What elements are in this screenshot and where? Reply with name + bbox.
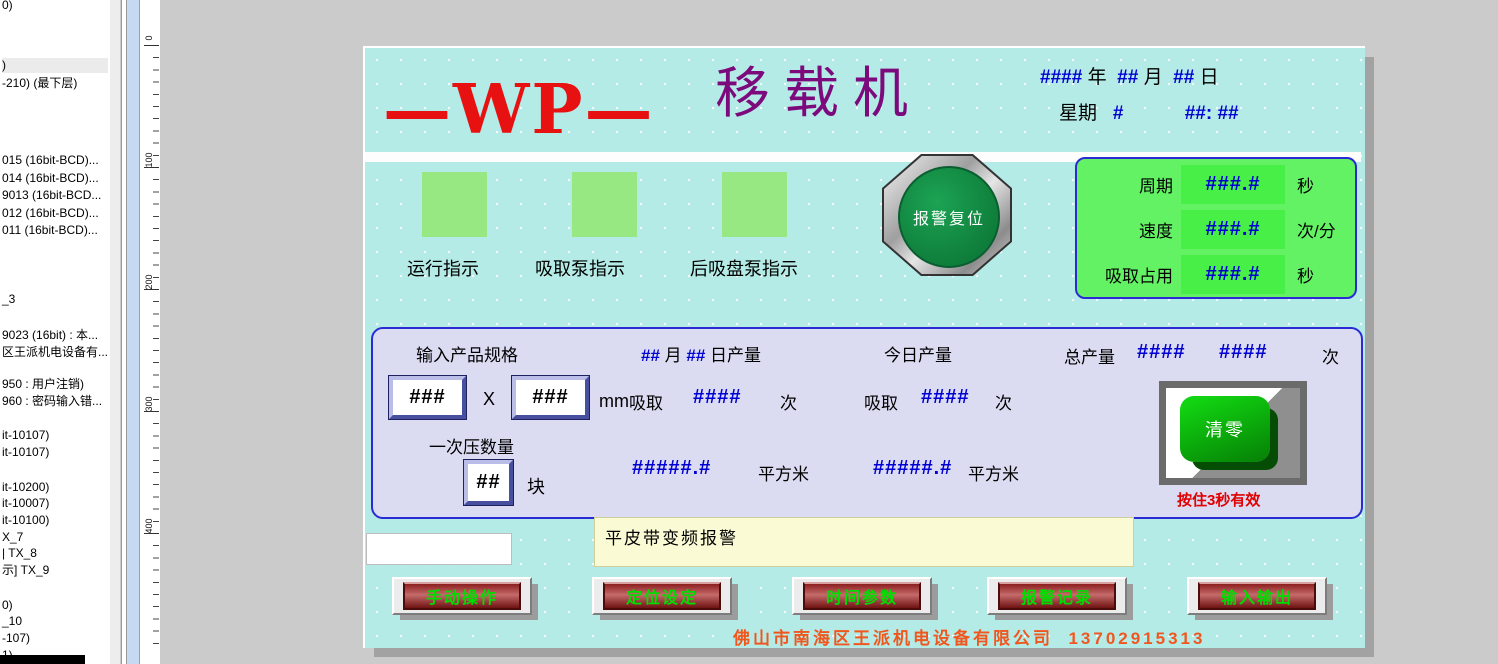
speed-unit: 次/分 [1297,217,1336,242]
list-item[interactable]: it-10107) [2,445,49,460]
cycle-value: ###.# [1181,165,1285,204]
list-item[interactable]: 9023 (16bit) : 本... [2,328,98,343]
month-label: 月 [1144,67,1163,88]
day-label: 日 [1200,67,1219,88]
list-item[interactable]: 011 (16bit-BCD)... [2,223,98,238]
list-item[interactable]: 014 (16bit-BCD)... [2,171,99,186]
company-phone: 13702915313 [1068,629,1205,648]
cycle-label: 周期 [1077,172,1173,197]
time-parameters-button[interactable]: 时间参数 [792,577,932,615]
press-count-input[interactable]: ## [464,460,513,505]
ruler-label: 400 [144,511,154,541]
page-title: 移载机 [715,48,922,128]
production-panel: 输入产品规格 ## 月 ## 日产量 今日产量 总产量 #### #### 次 … [371,327,1363,519]
stats-row: 周期 ###.# 秒 [1077,162,1355,207]
indicator-label: 后吸盘泵指示 [690,255,798,281]
suction-occupy-value: ###.# [1181,255,1285,294]
list-item[interactable]: 0) [2,598,13,613]
alarm-message-text: 平皮带变频报警 [605,524,738,549]
time-parameters-label: 时间参数 [803,582,921,610]
month-value: ## [1117,67,1138,88]
company-footer: 佛山市南海区王派机电设备有限公司 13702915313 [733,624,1205,649]
spec-height-input[interactable]: ### [512,376,589,419]
list-item[interactable]: 950 : 用户注销) [2,377,84,392]
indicator-label: 吸取泵指示 [535,255,625,281]
manual-operation-button[interactable]: 手动操作 [392,577,532,615]
date-display: #### 年 ## 月 ## 日 [1040,62,1219,89]
daily-suction-value: #### [693,386,742,409]
ruler-label: 200 [144,267,154,297]
total-output-value-low: #### [1219,341,1268,364]
input-output-label: 输入输出 [1198,582,1316,610]
company-name: 佛山市南海区王派机电设备有限公司 [733,629,1053,648]
total-output-unit: 次 [1322,343,1339,368]
suction-pump-indicator-light [572,172,637,237]
daily-area-value: #####.# [632,457,711,480]
spec-label: 输入产品规格 [416,341,518,366]
scroll-strip[interactable] [127,0,140,664]
alarm-record-label: 报警记录 [998,582,1116,610]
list-item[interactable]: 015 (16bit-BCD)... [2,153,99,168]
daily-suction-unit: 次 [780,389,797,414]
rear-suction-pump-indicator-light [722,172,787,237]
ruler-label: 100 [144,145,154,175]
stats-row: 吸取占用 ###.# 秒 [1077,252,1355,297]
daily-output-title: ## 月 ## 日产量 [641,341,761,366]
ruler-ticks [153,45,159,655]
position-setting-button[interactable]: 定位设定 [592,577,732,615]
today-area-value: #####.# [873,457,952,480]
week-label: 星期 [1059,103,1097,124]
list-item[interactable]: 012 (16bit-BCD)... [2,206,99,221]
list-item[interactable]: 9013 (16bit-BCD... [2,188,101,203]
manual-operation-label: 手动操作 [403,582,521,610]
clear-button-frame: 清零 [1159,381,1307,485]
stats-row: 速度 ###.# 次/分 [1077,207,1355,252]
today-suction-value: #### [921,386,970,409]
alarm-record-button[interactable]: 报警记录 [987,577,1127,615]
daily-month-value: ## [641,346,660,365]
total-output-label: 总产量 [1064,343,1115,368]
time-value: ##: ## [1185,103,1239,124]
position-setting-label: 定位设定 [603,582,721,610]
panel-splitter[interactable] [110,0,120,664]
alarm-reset-label: 报警复位 [898,166,1000,268]
hmi-screen: —WP— 移载机 #### 年 ## 月 ## 日 星期 # ##: ## 运行… [363,46,1365,648]
speed-label: 速度 [1077,217,1173,242]
spec-unit-label: mm [599,391,629,412]
suction-occupy-unit: 秒 [1297,262,1314,287]
ruler-label: 300 [144,389,154,419]
alarm-reset-button[interactable]: 报警复位 [882,154,1012,276]
list-item[interactable]: it-10107) [2,428,49,443]
list-item[interactable]: 0) [2,0,13,13]
daily-month-label: 月 [665,346,682,365]
list-item[interactable]: | TX_8 [2,546,37,561]
indicator-label: 运行指示 [407,255,479,281]
list-item[interactable]: -210) (最下层) [2,76,77,91]
list-item[interactable]: 区王派机电设备有... [2,345,108,360]
spec-x-separator: X [483,389,495,410]
alarm-message-bar: 平皮带变频报警 [594,517,1134,567]
speed-value: ###.# [1181,210,1285,249]
input-output-button[interactable]: 输入输出 [1187,577,1327,615]
total-output-value-high: #### [1137,341,1186,364]
cycle-unit: 秒 [1297,172,1314,197]
week-value: # [1113,103,1124,124]
list-item[interactable]: it-10100) [2,513,49,528]
list-item[interactable]: it-10007) [2,496,49,511]
clear-button[interactable]: 清零 [1180,396,1270,462]
cycle-stats-panel: 周期 ###.# 秒 速度 ###.# 次/分 吸取占用 ###.# 秒 [1075,157,1357,299]
list-item[interactable]: _10 [2,614,22,629]
list-item[interactable]: it-10200) [2,480,49,495]
clear-hold-hint: 按住3秒有效 [1177,489,1260,510]
suction-occupy-label: 吸取占用 [1077,262,1173,287]
run-indicator-light [422,172,487,237]
alarm-reset-bezel: 报警复位 [884,156,1010,274]
daily-day-label: 日产量 [710,346,761,365]
spec-width-input[interactable]: ### [389,376,466,419]
day-value: ## [1173,67,1194,88]
year-value: #### [1040,67,1082,88]
today-suction-unit: 次 [995,389,1012,414]
bottom-scrollbar[interactable] [0,655,85,664]
list-item[interactable]: X_7 [2,530,23,545]
today-area-unit: 平方米 [968,460,1019,485]
empty-display-box [366,533,512,565]
company-logo: —WP— [383,70,655,150]
daily-area-unit: 平方米 [758,460,809,485]
daily-suction-label: 吸取 [629,389,663,414]
vertical-ruler: 0 100 200 300 400 [140,0,160,664]
list-item[interactable]: _3 [2,292,15,307]
project-tree-panel: 0) ) -210) (最下层) 015 (16bit-BCD)... 014 … [0,0,110,664]
press-count-label: 一次压数量 [429,433,514,458]
today-suction-label: 吸取 [864,389,898,414]
list-item[interactable]: -107) [2,631,30,646]
year-label: 年 [1088,67,1107,88]
list-item[interactable]: 示] TX_9 [2,563,49,578]
daily-day-value: ## [686,346,705,365]
weekday-time-display: 星期 # ##: ## [1059,98,1239,125]
list-item[interactable]: 960 : 密码输入错... [2,394,102,409]
ruler-label: 0 [144,23,154,53]
press-count-unit: 块 [527,473,545,499]
list-item-selected[interactable]: ) [2,58,108,73]
today-output-label: 今日产量 [884,341,952,366]
